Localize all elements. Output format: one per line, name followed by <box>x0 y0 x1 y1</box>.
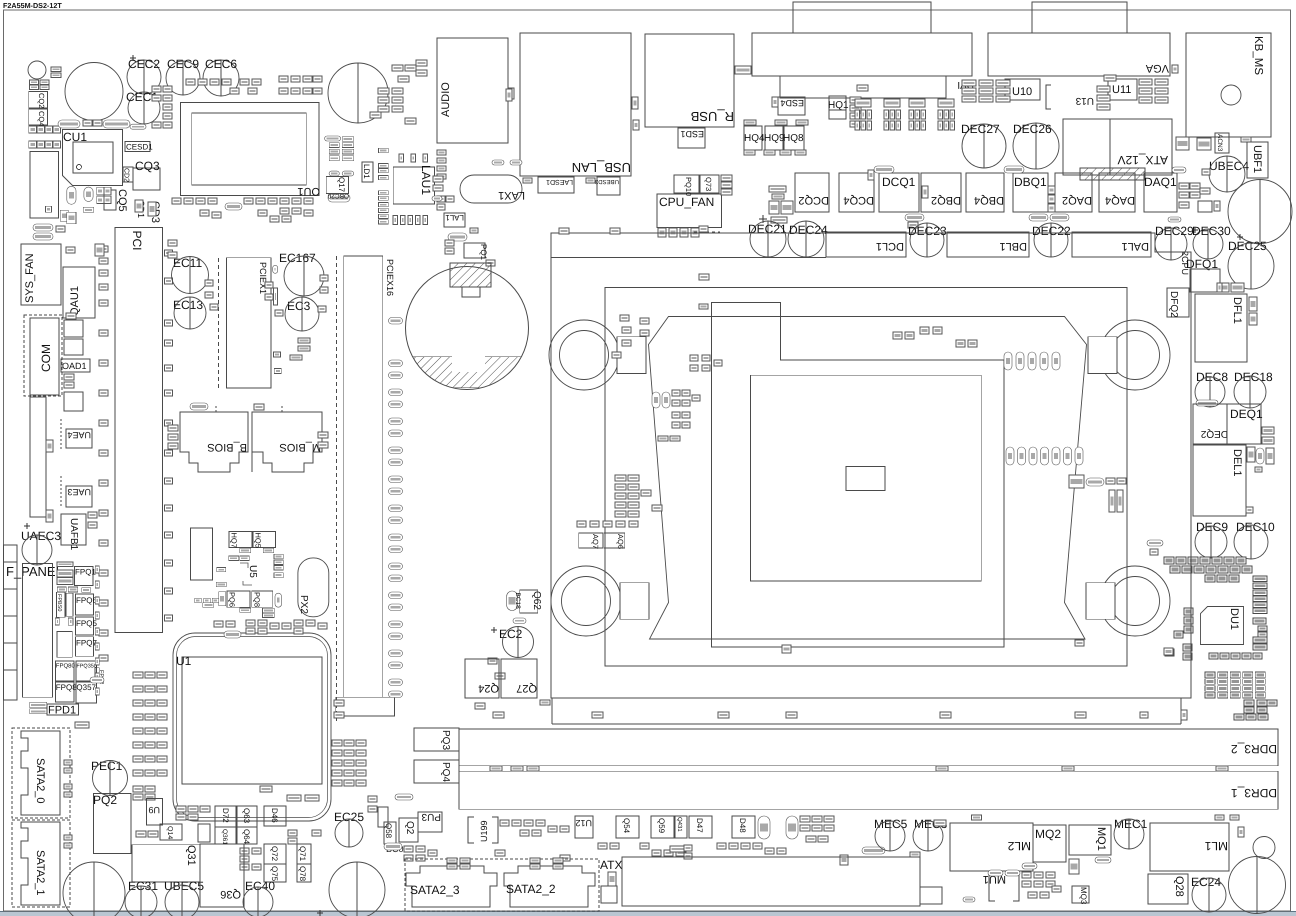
svg-text:MQ1: MQ1 <box>1095 827 1107 851</box>
svg-text:DBQ2: DBQ2 <box>931 194 961 206</box>
svg-text:QAU1: QAU1 <box>69 286 81 316</box>
svg-text:DAQ2: DAQ2 <box>1062 194 1092 206</box>
svg-text:PQ6: PQ6 <box>228 592 237 607</box>
svg-text:FPQ6: FPQ6 <box>76 596 97 605</box>
svg-text:CQ3: CQ3 <box>135 159 160 173</box>
svg-text:COM: COM <box>39 344 53 372</box>
svg-text:R_USB: R_USB <box>691 109 734 124</box>
svg-text:DBQ1: DBQ1 <box>1014 175 1047 189</box>
svg-text:PCIEX1: PCIEX1 <box>258 262 268 294</box>
svg-text:DAL1: DAL1 <box>1121 240 1149 252</box>
svg-text:CQ5: CQ5 <box>116 189 128 212</box>
svg-text:D47: D47 <box>695 818 704 833</box>
svg-text:FPQ7: FPQ7 <box>76 639 97 648</box>
svg-text:LAL1: LAL1 <box>445 213 464 222</box>
svg-text:Q62: Q62 <box>531 591 542 610</box>
svg-text:Q78: Q78 <box>298 866 307 882</box>
svg-text:ACN3: ACN3 <box>1216 134 1223 152</box>
svg-text:DEC26: DEC26 <box>1013 122 1052 136</box>
svg-text:Q14: Q14 <box>166 826 173 839</box>
svg-text:ML2: ML2 <box>1007 839 1031 853</box>
svg-text:Q64: Q64 <box>242 829 251 845</box>
svg-text:CQ2: CQ2 <box>37 93 46 108</box>
svg-text:HQ4: HQ4 <box>744 133 765 144</box>
svg-text:DEC27: DEC27 <box>961 122 1000 136</box>
svg-text:DEC23: DEC23 <box>908 224 947 238</box>
svg-text:AQ6: AQ6 <box>616 534 625 549</box>
svg-text:DBQ4: DBQ4 <box>974 194 1004 206</box>
svg-text:LAESD1: LAESD1 <box>546 178 573 185</box>
svg-text:DEL1: DEL1 <box>1231 449 1243 477</box>
svg-text:DEC22: DEC22 <box>1032 224 1071 238</box>
svg-text:Q72: Q72 <box>270 846 279 862</box>
svg-text:FPQ5: FPQ5 <box>76 619 97 628</box>
svg-text:PQ8: PQ8 <box>252 592 261 607</box>
svg-text:Q58: Q58 <box>384 823 393 839</box>
svg-text:PQ4: PQ4 <box>440 762 451 782</box>
svg-text:DEQ2: DEQ2 <box>1200 428 1228 439</box>
svg-text:HQ8: HQ8 <box>783 133 804 144</box>
svg-text:PQ3: PQ3 <box>440 730 451 750</box>
svg-text:DEC24: DEC24 <box>789 223 828 237</box>
svg-text:U10: U10 <box>1012 86 1032 98</box>
svg-text:DEC29: DEC29 <box>1155 224 1194 238</box>
svg-text:F2A55M-DS2-12T: F2A55M-DS2-12T <box>3 1 62 10</box>
svg-text:DDR3_1: DDR3_1 <box>1231 786 1277 800</box>
svg-text:HQ5: HQ5 <box>254 533 263 548</box>
svg-text:ATX: ATX <box>600 858 622 872</box>
svg-text:SYS_FAN: SYS_FAN <box>24 253 36 303</box>
svg-text:MEC5: MEC5 <box>874 817 908 831</box>
svg-text:BC18: BC18 <box>514 593 521 610</box>
svg-text:Q28: Q28 <box>1173 876 1185 897</box>
svg-text:DFL1: DFL1 <box>1231 297 1243 324</box>
svg-text:PQ1: PQ1 <box>479 244 488 261</box>
svg-text:MQ3: MQ3 <box>1079 887 1088 905</box>
svg-text:UAFB1: UAFB1 <box>68 518 79 551</box>
svg-text:DAQ1: DAQ1 <box>1144 175 1177 189</box>
svg-text:DU1: DU1 <box>1228 608 1240 630</box>
svg-text:FPQ350: FPQ350 <box>76 664 96 670</box>
svg-text:OBC20: OBC20 <box>327 192 349 199</box>
svg-text:PQ10: PQ10 <box>684 177 693 196</box>
svg-text:U13: U13 <box>1075 95 1094 106</box>
svg-text:SATA2_1: SATA2_1 <box>34 850 46 895</box>
svg-text:DCQ2: DCQ2 <box>798 194 829 206</box>
svg-text:CEC2: CEC2 <box>128 57 160 71</box>
svg-text:PQ2: PQ2 <box>93 793 117 807</box>
svg-text:Q361: Q361 <box>221 829 228 845</box>
svg-text:DEC10: DEC10 <box>1236 520 1275 534</box>
svg-text:PCI: PCI <box>130 231 144 251</box>
svg-text:DCQ4: DCQ4 <box>843 194 874 206</box>
svg-text:UBESD3: UBESD3 <box>594 178 619 185</box>
svg-text:SATA2_2: SATA2_2 <box>506 882 556 896</box>
svg-text:FPBS0: FPBS0 <box>56 594 62 611</box>
svg-text:ESD1: ESD1 <box>680 129 704 139</box>
svg-text:DAQ4: DAQ4 <box>1105 194 1135 206</box>
svg-text:DEC30: DEC30 <box>1192 224 1231 238</box>
svg-text:EC24: EC24 <box>1191 875 1221 889</box>
svg-text:DCL1: DCL1 <box>876 240 904 252</box>
svg-text:Q54: Q54 <box>622 818 631 834</box>
svg-text:FPD1: FPD1 <box>48 705 76 717</box>
svg-text:UAE3: UAE3 <box>67 487 91 497</box>
svg-text:D46: D46 <box>270 808 279 823</box>
svg-text:DBL1: DBL1 <box>999 240 1027 252</box>
svg-text:HQ1: HQ1 <box>828 100 849 111</box>
svg-text:U5: U5 <box>247 565 258 578</box>
svg-text:EC167: EC167 <box>279 251 316 265</box>
svg-text:OU1: OU1 <box>297 185 320 197</box>
svg-text:AUDIO: AUDIO <box>440 82 452 117</box>
svg-text:Q59: Q59 <box>657 818 666 834</box>
svg-text:PCIEX16: PCIEX16 <box>385 259 395 296</box>
svg-text:SATA2_0: SATA2_0 <box>34 758 46 803</box>
svg-text:ATX_12V: ATX_12V <box>1118 153 1168 167</box>
svg-text:CEC6: CEC6 <box>205 57 237 71</box>
svg-text:Q357: Q357 <box>76 683 96 692</box>
svg-text:PX2: PX2 <box>298 595 309 614</box>
svg-text:U11: U11 <box>1112 84 1131 96</box>
svg-text:UAE4: UAE4 <box>67 430 91 440</box>
svg-text:VGA: VGA <box>1145 62 1169 74</box>
svg-text:HQ7: HQ7 <box>230 533 239 548</box>
svg-text:FPQ8: FPQ8 <box>56 683 77 692</box>
svg-text:DFQ2: DFQ2 <box>1168 291 1179 318</box>
svg-text:D72: D72 <box>221 808 230 823</box>
svg-text:UBEC5: UBEC5 <box>164 879 204 893</box>
svg-text:DEQ1: DEQ1 <box>1230 407 1263 421</box>
svg-text:U199: U199 <box>479 820 489 842</box>
svg-text:Q63: Q63 <box>242 808 251 824</box>
svg-text:DCQ1: DCQ1 <box>882 175 916 189</box>
svg-text:AQ7: AQ7 <box>591 534 600 549</box>
svg-text:USB_LAN: USB_LAN <box>572 160 631 175</box>
svg-text:FPQ80: FPQ80 <box>56 663 76 670</box>
svg-text:DDR3_2: DDR3_2 <box>1231 742 1277 756</box>
svg-text:Q17: Q17 <box>337 177 346 193</box>
svg-text:CU1: CU1 <box>63 130 87 144</box>
svg-text:ESD4: ESD4 <box>780 98 804 108</box>
svg-text:ML1: ML1 <box>1204 839 1228 853</box>
svg-text:EC40: EC40 <box>245 879 275 893</box>
svg-text:Q27: Q27 <box>516 682 537 694</box>
svg-text:Q36: Q36 <box>220 888 241 900</box>
svg-text:Q71: Q71 <box>298 846 307 862</box>
svg-text:DEC21: DEC21 <box>748 222 787 236</box>
svg-text:PU3: PU3 <box>421 811 441 822</box>
svg-text:U9: U9 <box>148 805 160 815</box>
svg-text:CEC9: CEC9 <box>167 57 199 71</box>
svg-text:OAD1: OAD1 <box>62 361 87 371</box>
svg-text:FPQ1: FPQ1 <box>75 568 96 577</box>
svg-text:Q73: Q73 <box>704 177 713 191</box>
svg-text:Q431: Q431 <box>676 817 683 832</box>
svg-text:CESD1: CESD1 <box>126 143 153 152</box>
svg-text:HQ9: HQ9 <box>764 133 785 144</box>
svg-text:CD2: CD2 <box>123 168 130 182</box>
svg-text:LD1: LD1 <box>362 164 371 179</box>
svg-text:MQ2: MQ2 <box>1035 827 1061 841</box>
svg-text:Q24: Q24 <box>478 682 499 694</box>
svg-text:UBF1: UBF1 <box>1251 145 1263 173</box>
svg-text:Q2: Q2 <box>404 821 415 835</box>
svg-text:CQ4: CQ4 <box>37 111 46 126</box>
svg-text:D48: D48 <box>738 818 747 833</box>
svg-text:LAX1: LAX1 <box>498 189 525 201</box>
svg-text:DEC18: DEC18 <box>1234 370 1273 384</box>
svg-text:U12: U12 <box>575 818 592 828</box>
svg-text:U1: U1 <box>176 654 192 668</box>
svg-text:Q31: Q31 <box>185 845 197 866</box>
svg-text:CPU_FAN: CPU_FAN <box>659 195 714 209</box>
svg-text:F_PANEL: F_PANEL <box>6 564 63 579</box>
svg-text:LAU1: LAU1 <box>419 165 433 195</box>
svg-text:M_BIOS: M_BIOS <box>279 441 321 453</box>
svg-text:B_BIOS: B_BIOS <box>207 441 247 453</box>
svg-text:SATA2_3: SATA2_3 <box>410 883 460 897</box>
svg-text:KB_MS: KB_MS <box>1252 36 1264 75</box>
